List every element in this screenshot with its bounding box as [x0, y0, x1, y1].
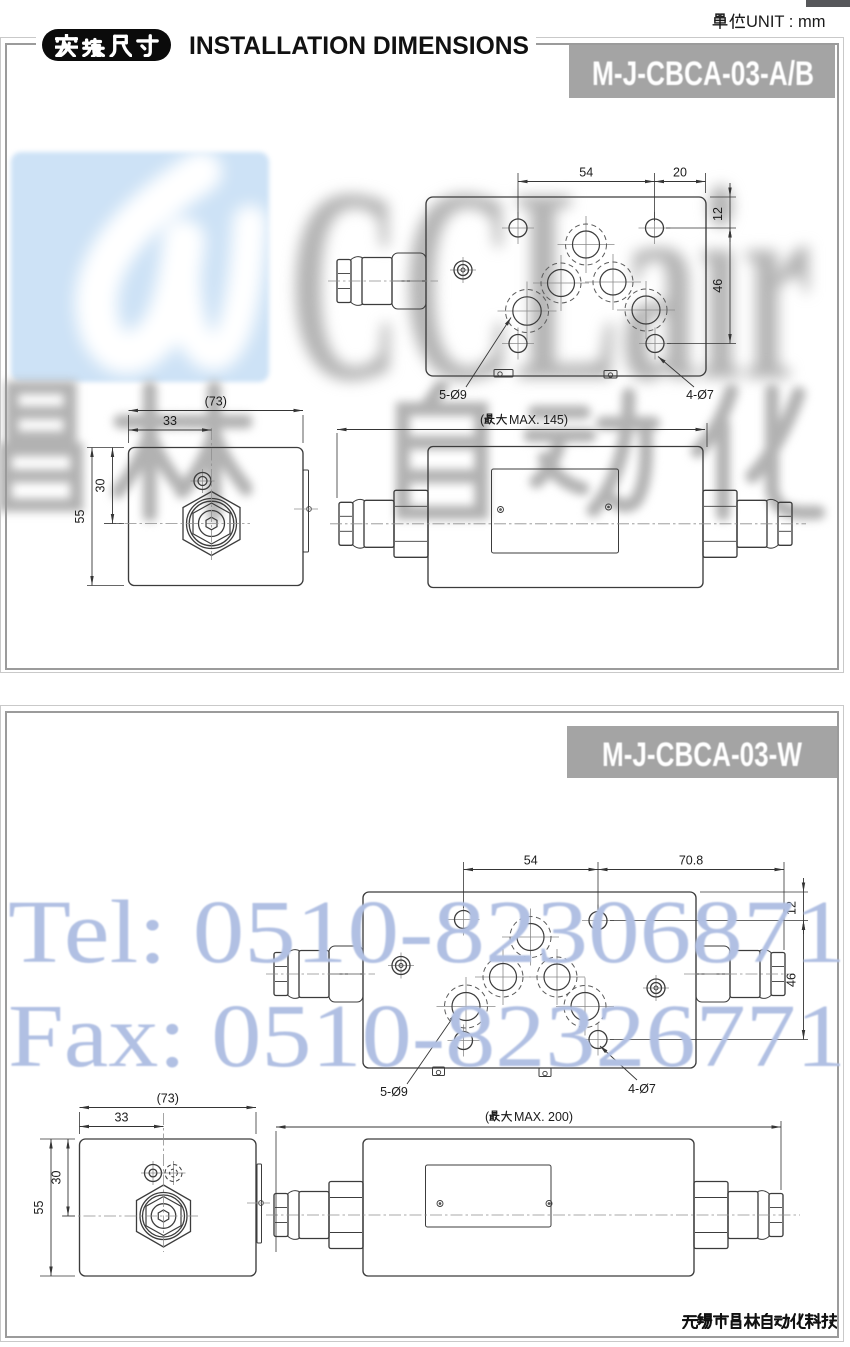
svg-text:Tel: 0510-82306871: Tel: 0510-82306871: [8, 883, 846, 982]
svg-text:Fax: 0510-82326771: Fax: 0510-82326771: [8, 987, 846, 1086]
